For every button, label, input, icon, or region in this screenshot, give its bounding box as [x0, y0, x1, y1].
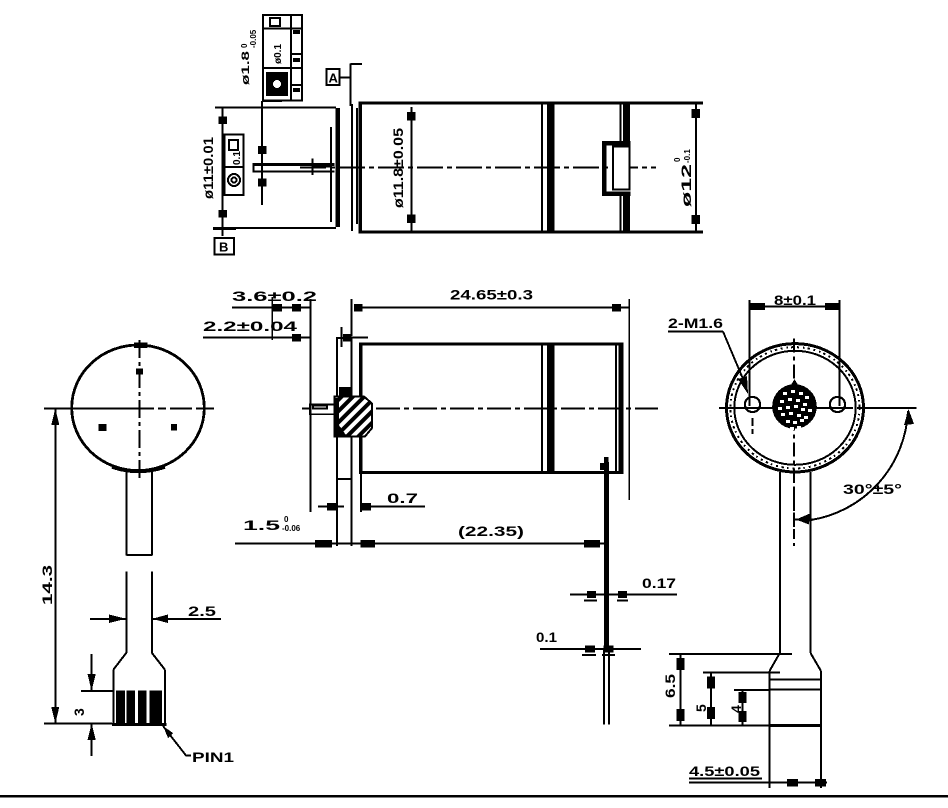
svg-text:0: 0: [673, 157, 682, 162]
svg-text:0: 0: [284, 515, 289, 524]
svg-text:ø1.8: ø1.8: [240, 51, 252, 85]
svg-text:-0.06: -0.06: [282, 524, 301, 533]
svg-text:0.17: 0.17: [642, 575, 676, 591]
svg-text:14.3: 14.3: [39, 565, 55, 605]
svg-text:0.1: 0.1: [232, 151, 243, 165]
svg-text:2-M1.6: 2-M1.6: [668, 315, 723, 331]
svg-text:4: 4: [728, 705, 744, 713]
svg-text:(22.35): (22.35): [458, 523, 524, 539]
svg-text:4.5±0.05: 4.5±0.05: [689, 763, 760, 779]
svg-text:0.1: 0.1: [536, 629, 557, 645]
svg-text:8±0.1: 8±0.1: [774, 292, 816, 308]
svg-text:2.5: 2.5: [188, 603, 216, 619]
svg-text:0: 0: [240, 43, 249, 48]
svg-text:1.5: 1.5: [243, 517, 280, 533]
svg-text:A: A: [329, 71, 339, 86]
svg-text:-0.05: -0.05: [249, 29, 258, 48]
svg-text:3: 3: [71, 708, 87, 716]
svg-text:ø11±0.01: ø11±0.01: [200, 137, 216, 199]
svg-text:30°±5°: 30°±5°: [843, 481, 902, 497]
svg-text:ø12: ø12: [678, 164, 694, 207]
svg-text:6.5: 6.5: [662, 674, 678, 698]
svg-text:-0.1: -0.1: [683, 149, 692, 163]
svg-text:ø11.8±0.05: ø11.8±0.05: [390, 128, 406, 208]
svg-text:2.2±0.04: 2.2±0.04: [203, 318, 297, 334]
svg-text:5: 5: [693, 704, 709, 712]
svg-text:PIN1: PIN1: [192, 749, 234, 765]
svg-text:B: B: [219, 240, 228, 255]
svg-text:0.7: 0.7: [387, 490, 418, 506]
svg-text:24.65±0.3: 24.65±0.3: [450, 287, 533, 303]
svg-text:3.6±0.2: 3.6±0.2: [232, 288, 317, 304]
svg-text:ø0.1: ø0.1: [273, 44, 284, 64]
